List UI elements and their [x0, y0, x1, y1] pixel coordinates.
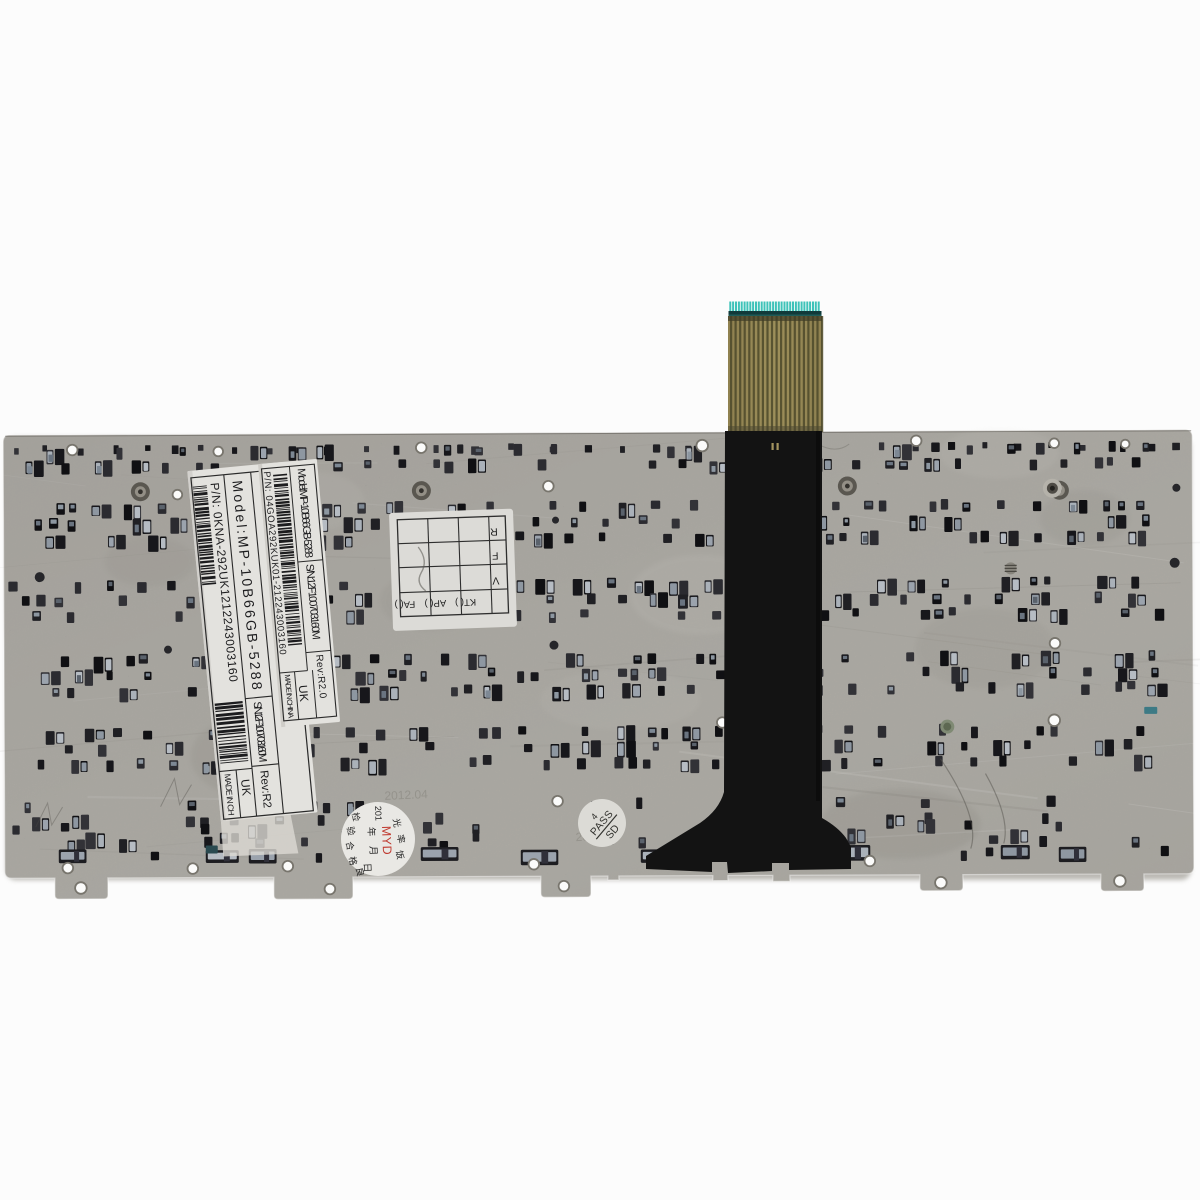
svg-text:良: 良 [354, 866, 366, 877]
svg-text:月: 月 [367, 846, 378, 856]
svg-text:MYD: MYD [379, 826, 394, 856]
svg-text:UK: UK [238, 778, 254, 796]
svg-text:2012.04: 2012.04 [384, 787, 428, 803]
svg-text:检: 检 [350, 811, 362, 822]
svg-text:AP( ): AP( ) [424, 597, 446, 609]
svg-text:饭: 饭 [394, 849, 406, 860]
svg-text:FA( ): FA( ) [394, 598, 415, 610]
svg-text:年: 年 [365, 827, 377, 837]
svg-text:KT( ): KT( ) [455, 596, 476, 608]
svg-text:合: 合 [344, 840, 356, 851]
svg-text:格: 格 [347, 855, 359, 866]
svg-text:F: F [492, 549, 499, 561]
svg-text:率: 率 [395, 833, 407, 844]
svg-text:验: 验 [345, 825, 357, 836]
svg-text:201: 201 [373, 806, 384, 821]
svg-text:V: V [492, 574, 499, 586]
svg-text:光: 光 [391, 817, 403, 828]
svg-text:R: R [489, 525, 497, 537]
svg-text:UK: UK [296, 684, 311, 702]
